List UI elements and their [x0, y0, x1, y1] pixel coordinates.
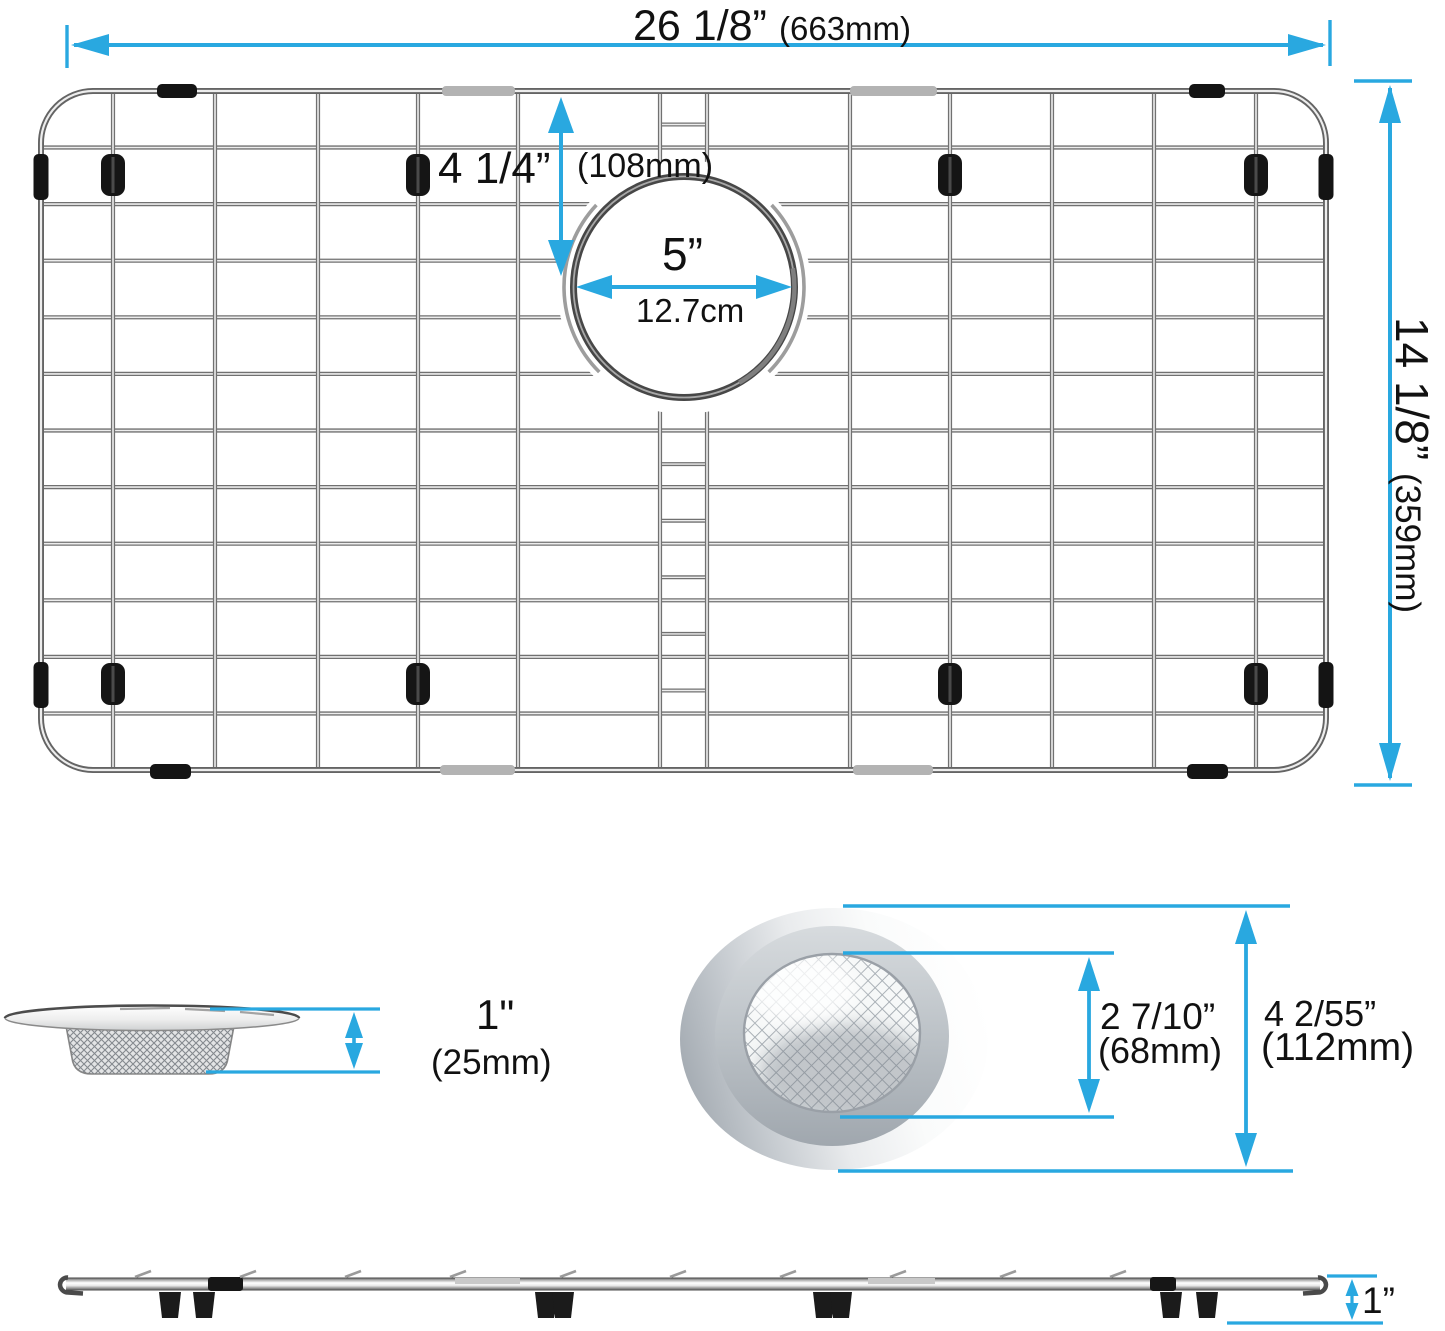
svg-text:1”: 1” — [1362, 1280, 1395, 1321]
svg-text:26 1/8”: 26 1/8” — [633, 2, 767, 50]
svg-text:12.7cm: 12.7cm — [636, 292, 744, 329]
svg-text:(663mm): (663mm) — [779, 10, 911, 47]
svg-text:(108mm): (108mm) — [577, 147, 713, 185]
svg-text:4 1/4”: 4 1/4” — [438, 144, 551, 193]
svg-text:(25mm): (25mm) — [431, 1043, 552, 1082]
svg-text:(68mm): (68mm) — [1098, 1030, 1222, 1071]
svg-text:1": 1" — [476, 991, 514, 1038]
svg-text:(112mm): (112mm) — [1261, 1026, 1414, 1069]
svg-text:5”: 5” — [662, 228, 703, 280]
